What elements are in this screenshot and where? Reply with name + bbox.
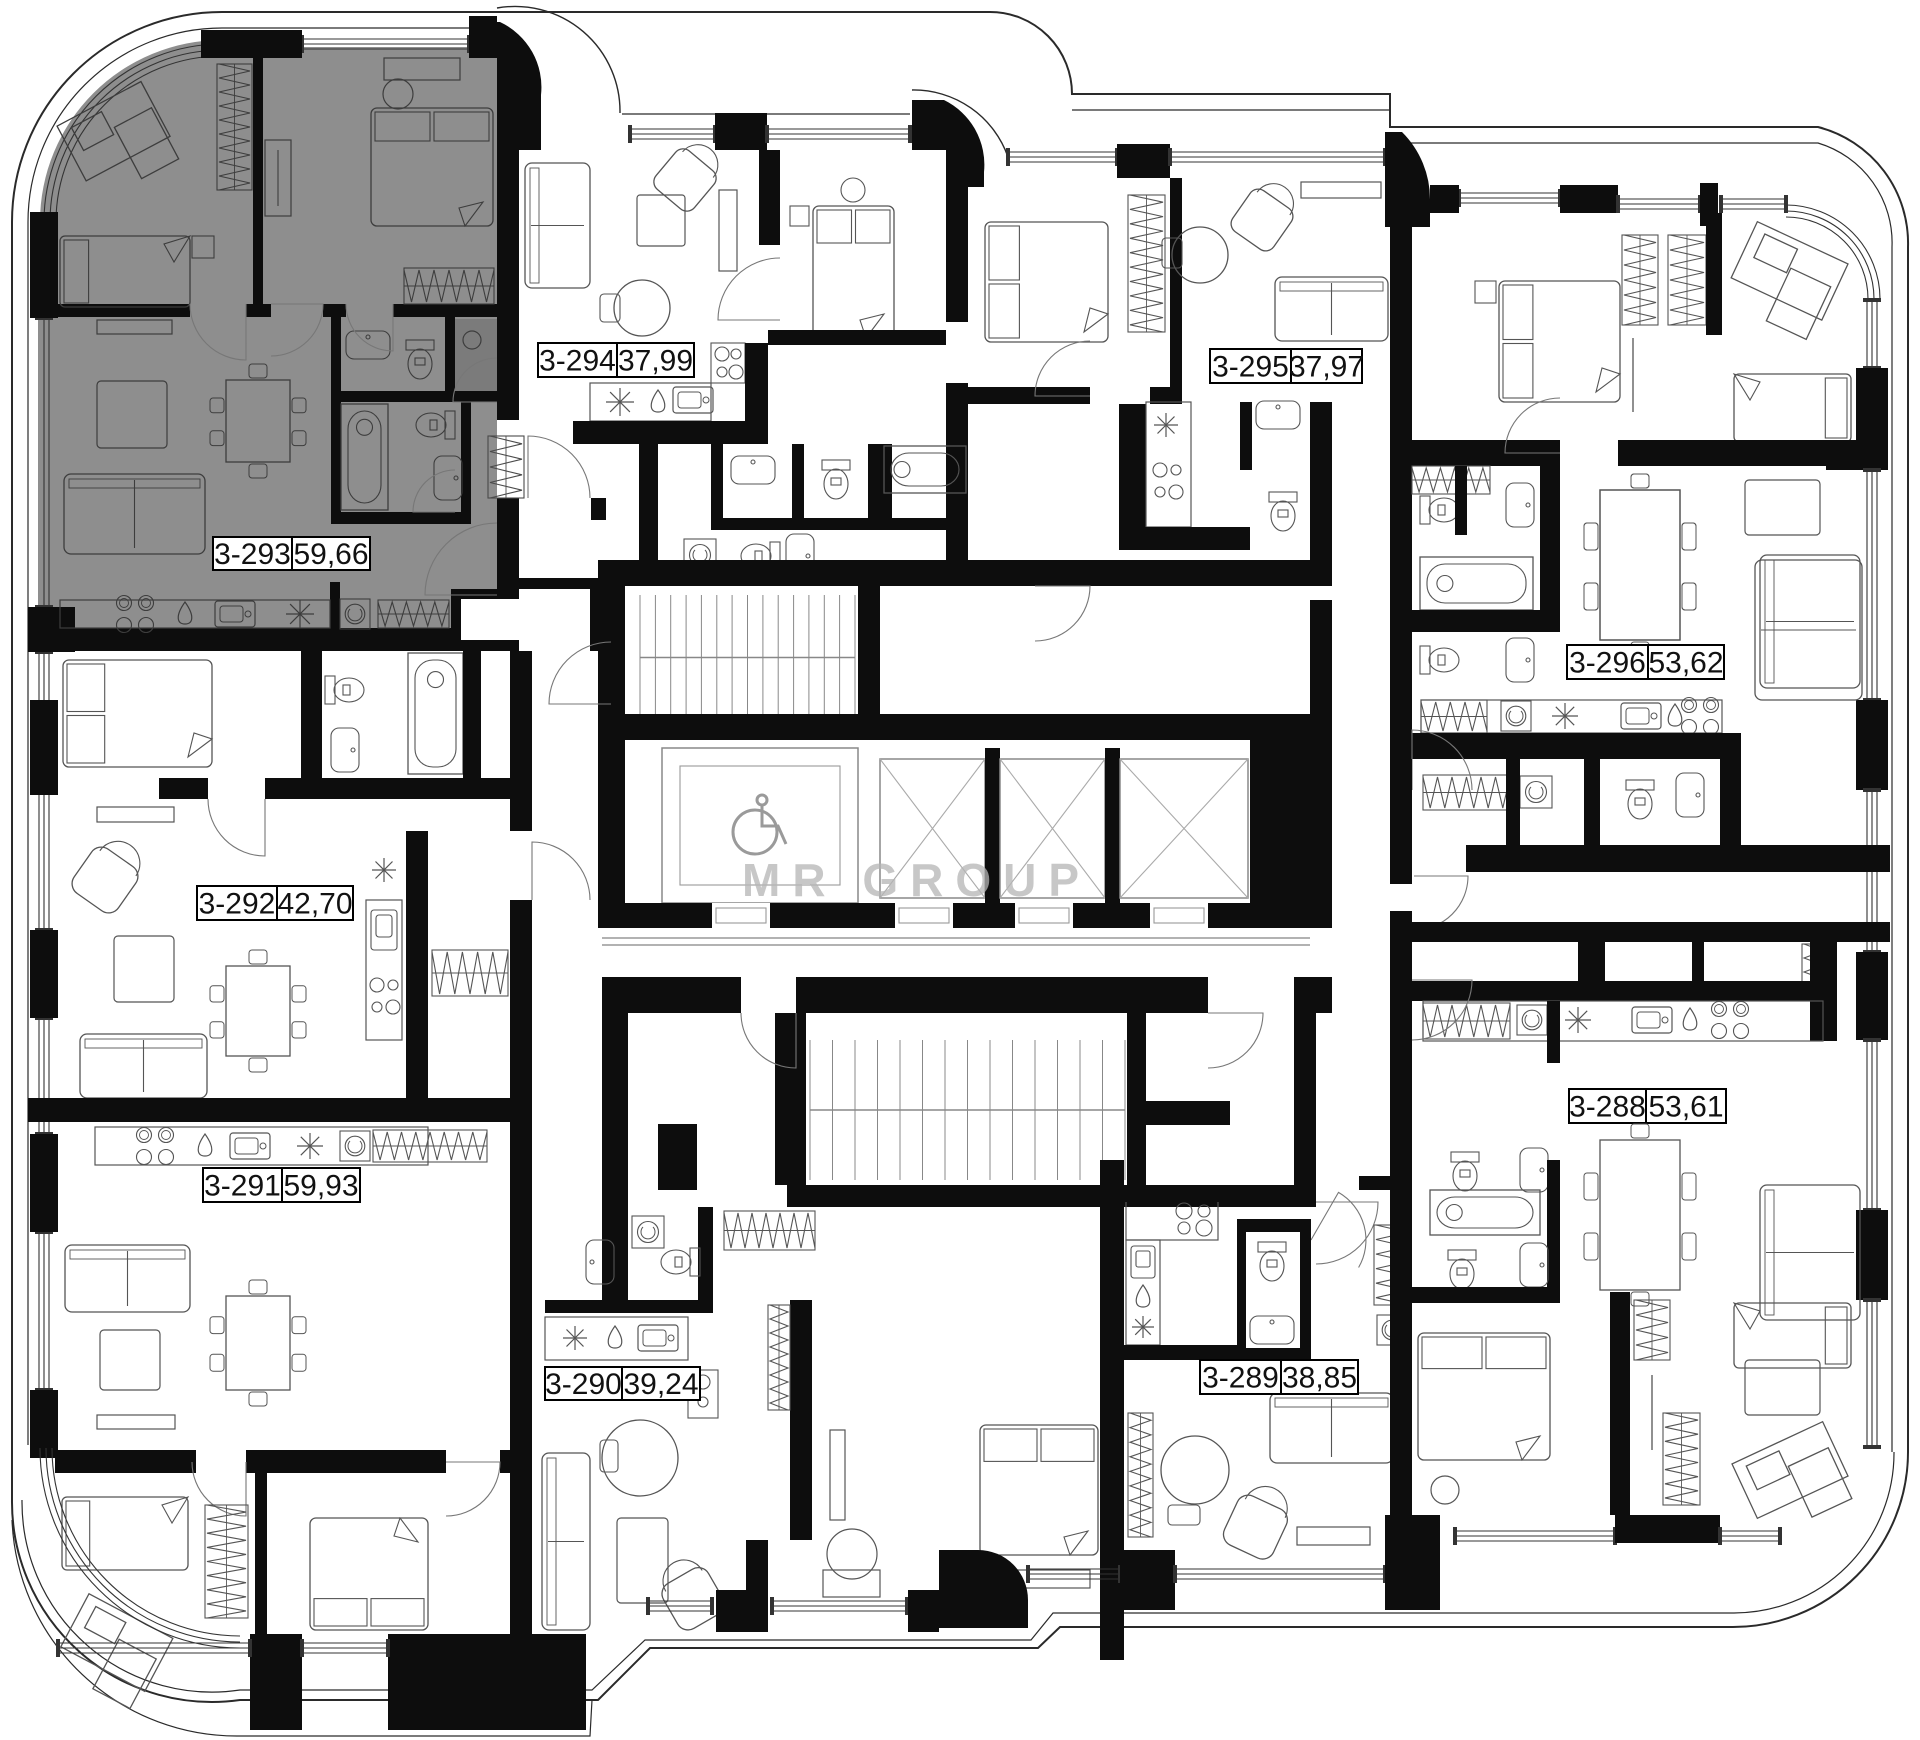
svg-text:3-295: 3-295 — [1212, 351, 1289, 384]
svg-text:MR GROUP: MR GROUP — [742, 854, 1091, 906]
svg-text:3-296: 3-296 — [1569, 647, 1646, 680]
svg-text:39,24: 39,24 — [623, 1368, 698, 1401]
svg-text:3-294: 3-294 — [539, 345, 616, 378]
svg-text:3-288: 3-288 — [1569, 1091, 1646, 1124]
svg-text:3-292: 3-292 — [199, 888, 276, 921]
svg-text:53,61: 53,61 — [1648, 1091, 1723, 1124]
svg-text:3-293: 3-293 — [214, 538, 291, 571]
svg-text:59,93: 59,93 — [283, 1170, 358, 1203]
svg-text:42,70: 42,70 — [277, 888, 352, 921]
svg-text:37,99: 37,99 — [618, 345, 693, 378]
svg-text:3-289: 3-289 — [1202, 1362, 1279, 1395]
svg-text:53,62: 53,62 — [1648, 647, 1723, 680]
svg-text:38,85: 38,85 — [1282, 1362, 1357, 1395]
svg-text:3-291: 3-291 — [204, 1170, 281, 1203]
svg-text:37,97: 37,97 — [1289, 351, 1364, 384]
svg-text:3-290: 3-290 — [545, 1368, 622, 1401]
svg-text:59,66: 59,66 — [293, 538, 368, 571]
